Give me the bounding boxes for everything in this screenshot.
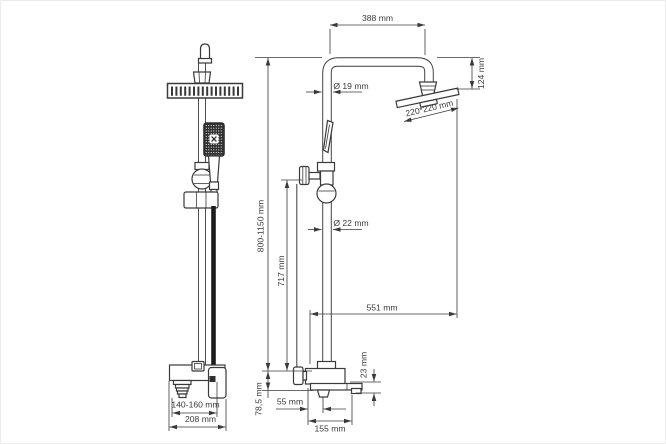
dim-head-offset: 124 mm [437, 58, 486, 90]
dim-label-inlet-spacing: 140-160 mm [171, 400, 219, 410]
technical-drawing-page: 388 mm 124 mm 220*220 mm Ø 19 mm 800-115… [0, 0, 666, 444]
dim-label-reach: 551 mm [366, 303, 397, 313]
dim-label-mixer-depth: 155 mm [314, 424, 345, 434]
pole-top-cap [201, 44, 210, 59]
dim-label-wall-offset: 78,5 mm [254, 382, 264, 415]
slider-bracket-front [184, 192, 218, 208]
dim-label-pipe-diameter: Ø 22 mm [333, 218, 368, 228]
overhead-shower-front [168, 84, 243, 99]
mixer-front [170, 362, 227, 399]
dim-pipe-diameter: Ø 22 mm [308, 218, 369, 230]
dim-label-mixer-width: 208 mm [185, 414, 216, 424]
dim-label-riser-height: 717 mm [276, 255, 286, 286]
front-view-drawing [168, 44, 243, 398]
dim-label-width-top: 388 mm [362, 13, 393, 23]
dim-label-height-range: 800-1150 mm [256, 200, 266, 252]
shower-diagram: 388 mm 124 mm 220*220 mm Ø 19 mm 800-115… [0, 0, 666, 444]
dim-spout-offset: 55 mm [276, 397, 346, 414]
dim-reach: 551 mm [310, 99, 457, 364]
dim-label-spout-drop: 23 mm [359, 352, 369, 378]
dim-pipe-top-diameter: Ø 19 mm [306, 81, 369, 92]
dim-height-range: 800-1150 mm [255, 58, 322, 372]
dim-label-pipe-top-diameter: Ø 19 mm [333, 81, 368, 91]
dim-mixer-depth: 155 mm [308, 388, 352, 434]
dim-label-head-offset: 124 mm [476, 58, 486, 89]
dim-spout-drop: 23 mm [350, 352, 381, 406]
dim-riser-height: 717 mm [276, 180, 302, 371]
holder-diverter-side [300, 163, 337, 204]
overhead-connector-nut [194, 72, 211, 83]
dim-label-spout-offset: 55 mm [277, 397, 303, 407]
dim-width-top: 388 mm [330, 13, 425, 55]
